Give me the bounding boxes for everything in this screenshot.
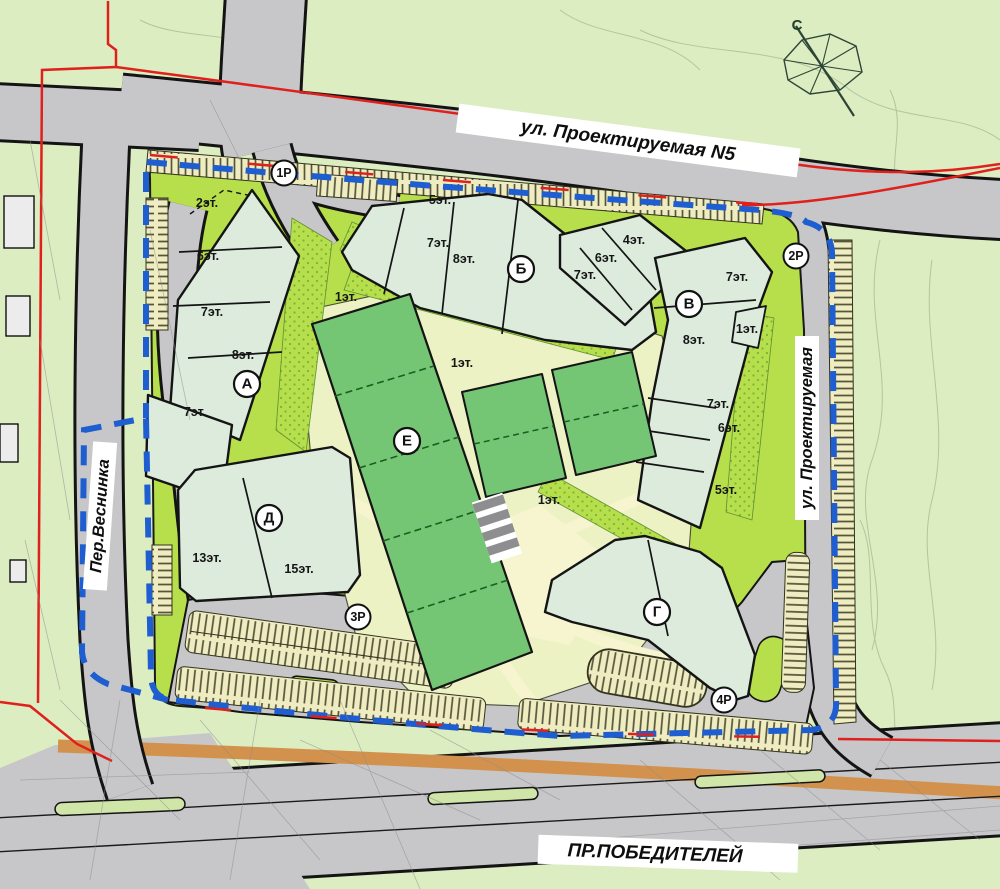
svg-text:2Р: 2Р <box>788 249 803 263</box>
floor-label: 4эт. <box>623 233 645 247</box>
compass-north-letter: С <box>792 17 803 34</box>
floor-label: 7эт. <box>427 236 449 250</box>
svg-text:3Р: 3Р <box>350 610 365 624</box>
floor-label: 6эт. <box>197 249 219 263</box>
svg-text:Д: Д <box>264 510 275 527</box>
floor-label: 8эт. <box>232 348 254 362</box>
parking-marker-2p: 2Р <box>784 244 809 269</box>
parking-marker-4p: 4Р <box>712 688 737 713</box>
floor-label: 6эт. <box>718 421 740 435</box>
building-marker-d: Д <box>256 505 282 531</box>
floor-label: 1эт. <box>736 322 758 336</box>
site-plan-map: ул. Проектируемая N5 Пер.Веснинка ул. Пр… <box>0 0 1000 889</box>
street-label-right: ул. Проектируемая <box>795 336 819 520</box>
svg-text:Б: Б <box>516 261 527 278</box>
building-marker-a: А <box>234 371 260 397</box>
svg-text:Г: Г <box>653 604 662 621</box>
floor-label: 2эт. <box>196 196 218 210</box>
building-marker-g: Г <box>644 599 670 625</box>
svg-text:А: А <box>242 376 253 393</box>
floor-label: 1эт. <box>451 356 473 370</box>
floor-label: 8эт. <box>683 333 705 347</box>
building-marker-e: Е <box>394 428 420 454</box>
svg-text:В: В <box>684 296 695 313</box>
floor-label: 7эт. <box>201 305 223 319</box>
street-name-right: ул. Проектируемая <box>798 347 816 510</box>
floor-label: 8эт. <box>453 252 475 266</box>
svg-text:Е: Е <box>402 433 412 450</box>
parking-marker-3p: 3Р <box>346 605 371 630</box>
floor-label: 7эт. <box>726 270 748 284</box>
floor-label: 6эт. <box>595 251 617 265</box>
floor-label: 1эт. <box>538 493 560 507</box>
floor-label: 13эт. <box>192 551 221 565</box>
parking-marker-1p: 1Р <box>272 161 297 186</box>
floor-label: 15эт. <box>284 562 313 576</box>
floor-label: 7эт. <box>574 268 596 282</box>
floor-label: 7эт. <box>707 397 729 411</box>
floor-label: 5эт. <box>429 193 451 207</box>
svg-text:4Р: 4Р <box>716 693 731 707</box>
svg-text:1Р: 1Р <box>276 166 291 180</box>
building-marker-v: В <box>676 291 702 317</box>
floor-label: 7эт. <box>184 405 206 419</box>
floor-label: 1эт. <box>335 290 357 304</box>
floor-label: 5эт. <box>715 483 737 497</box>
building-marker-b: Б <box>508 256 534 282</box>
site-plan-page: ул. Проектируемая N5 Пер.Веснинка ул. Пр… <box>0 0 1000 889</box>
